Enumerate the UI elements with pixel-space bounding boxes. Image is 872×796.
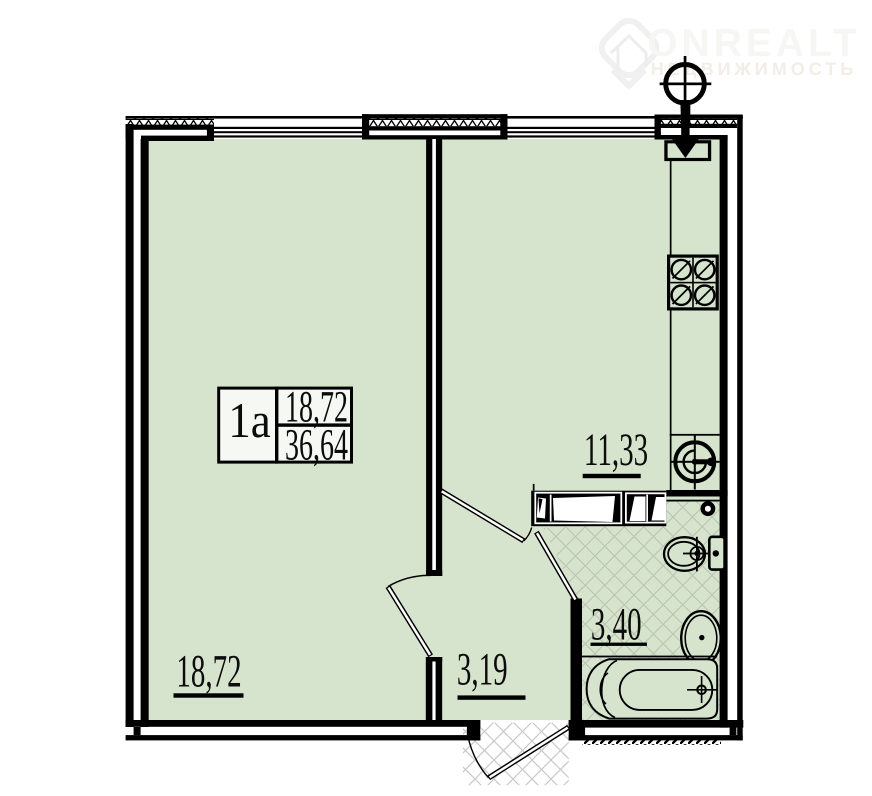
svg-text:36,64: 36,64 [285,421,348,471]
svg-text:НЕДВИЖИМОСТЬ: НЕДВИЖИМОСТЬ [651,59,857,79]
svg-text:1a: 1a [228,393,271,449]
svg-text:3,19: 3,19 [457,645,508,696]
svg-text:11,33: 11,33 [584,425,648,476]
svg-text:18,72: 18,72 [176,647,241,698]
